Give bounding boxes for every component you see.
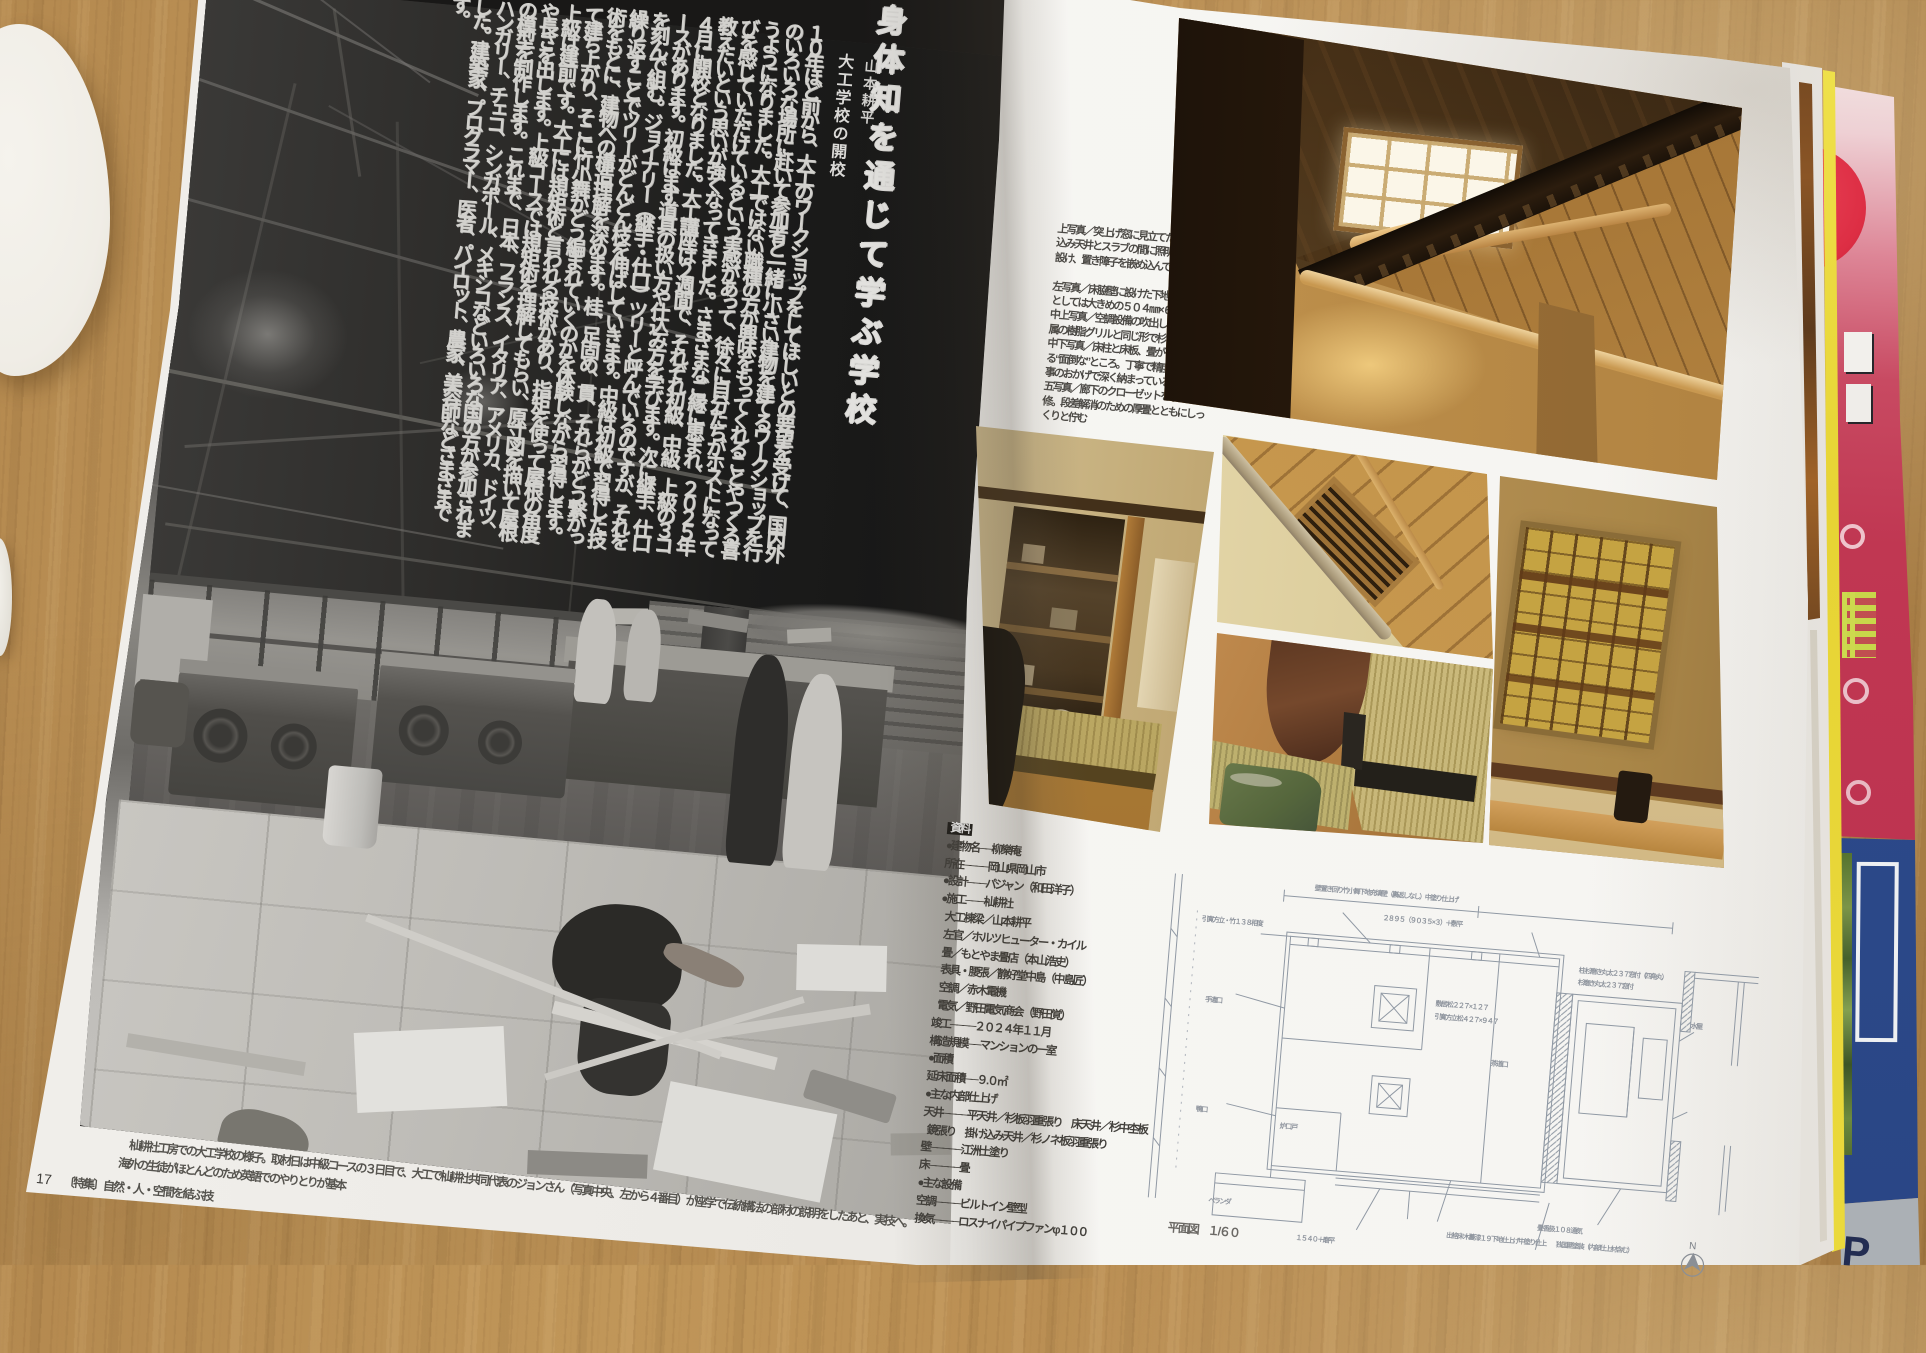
svg-text:杉磨き丸太２３７窓付: 杉磨き丸太２３７窓付 xyxy=(1577,978,1634,992)
svg-text:独国壁塗装（内部仕上材含む）: 独国壁塗装（内部仕上材含む） xyxy=(1554,1240,1632,1255)
svg-text:１５４０＋磨平: １５４０＋磨平 xyxy=(1295,1233,1336,1245)
svg-text:柱 杉磨き丸太２３７窓付（四角丸）: 柱 杉磨き丸太２３７窓付（四角丸） xyxy=(1578,966,1667,982)
svg-text:炉口 戸: 炉口 戸 xyxy=(1279,1121,1298,1132)
svg-text:水屋: 水屋 xyxy=(1690,1021,1703,1031)
svg-text:N: N xyxy=(1689,1241,1697,1253)
svg-text:２８９５（９０３５×３）＋敷平: ２８９５（９０３５×３）＋敷平 xyxy=(1382,913,1464,929)
svg-text:出格床 木蔓 漆１９下地仕上げ中塗り仕上: 出格床 木蔓 漆１９下地仕上げ中塗り仕上 xyxy=(1446,1230,1548,1247)
svg-text:敷居 松２２７×１２７: 敷居 松２２７×１２７ xyxy=(1435,999,1489,1012)
svg-text:手違口: 手違口 xyxy=(1205,994,1224,1004)
svg-text:平面図 １/６０: 平面図 １/６０ xyxy=(1167,1220,1239,1240)
svg-text:茶道口: 茶道口 xyxy=(1489,1058,1509,1069)
svg-text:引寛方立 松４２７×９４７: 引寛方立 松４２７×９４７ xyxy=(1434,1012,1499,1026)
svg-text:ベランダ: ベランダ xyxy=(1208,1195,1232,1206)
svg-text:畳 香扱１０８通気: 畳 香扱１０８通気 xyxy=(1537,1223,1584,1236)
svg-text:鴨口: 鴨口 xyxy=(1196,1104,1209,1114)
svg-text:引寛方立・竹１３８相度: 引寛方立・竹１３８相度 xyxy=(1201,914,1265,928)
